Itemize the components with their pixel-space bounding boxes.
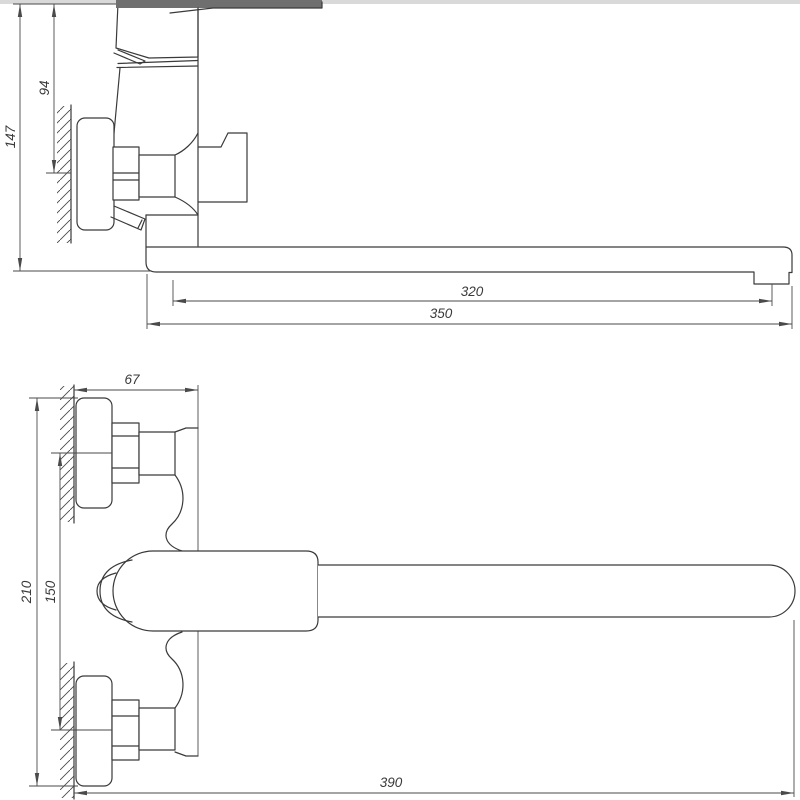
diverter-tab	[111, 206, 145, 230]
body-bottom-edge	[175, 752, 198, 756]
shower-outlet	[198, 133, 247, 202]
inlet-pipe-side	[139, 155, 175, 197]
handle-plan	[113, 551, 318, 631]
handle-lever	[116, 0, 322, 8]
wall-hatching	[60, 386, 74, 522]
body-flare-upper	[175, 133, 198, 155]
body-neck-upper	[166, 475, 183, 551]
dimension-label-94: 94	[37, 80, 52, 95]
spout-plan	[318, 565, 795, 617]
dimension-label-150: 150	[43, 580, 58, 603]
technical-drawing-page: 147 94 320 350	[0, 0, 800, 800]
wall-hatching	[57, 106, 71, 243]
dimension-label-67: 67	[124, 372, 140, 387]
body-flare-lower	[175, 197, 198, 215]
wall-hatching	[60, 663, 74, 798]
body-neck-lower	[166, 632, 183, 708]
dimension-label-320: 320	[461, 284, 484, 299]
eccentric-nut-plan-lower	[112, 700, 139, 760]
cartridge-ring-upper	[118, 61, 198, 64]
inlet-pipe-plan-lower	[139, 708, 175, 750]
body-top-edge	[175, 428, 198, 432]
dimension-label-390: 390	[380, 775, 403, 790]
side-view: 147 94 320 350	[0, 0, 800, 329]
escutcheon-plan-lower	[76, 676, 112, 786]
plan-view: 67 210 150 390	[19, 372, 795, 799]
inlet-pipe-plan-upper	[139, 432, 175, 475]
dimension-label-350: 350	[430, 306, 453, 321]
diverter-tab-inner	[138, 220, 142, 228]
escutcheon-side	[77, 118, 114, 230]
eccentric-nut-plan-upper	[112, 423, 139, 483]
cartridge-ring-lower	[117, 66, 198, 68]
dimension-label-210: 210	[19, 580, 34, 604]
dimension-label-147: 147	[3, 125, 18, 148]
spout-side	[146, 247, 792, 284]
faucet-dimensional-drawing: 147 94 320 350	[0, 0, 800, 800]
